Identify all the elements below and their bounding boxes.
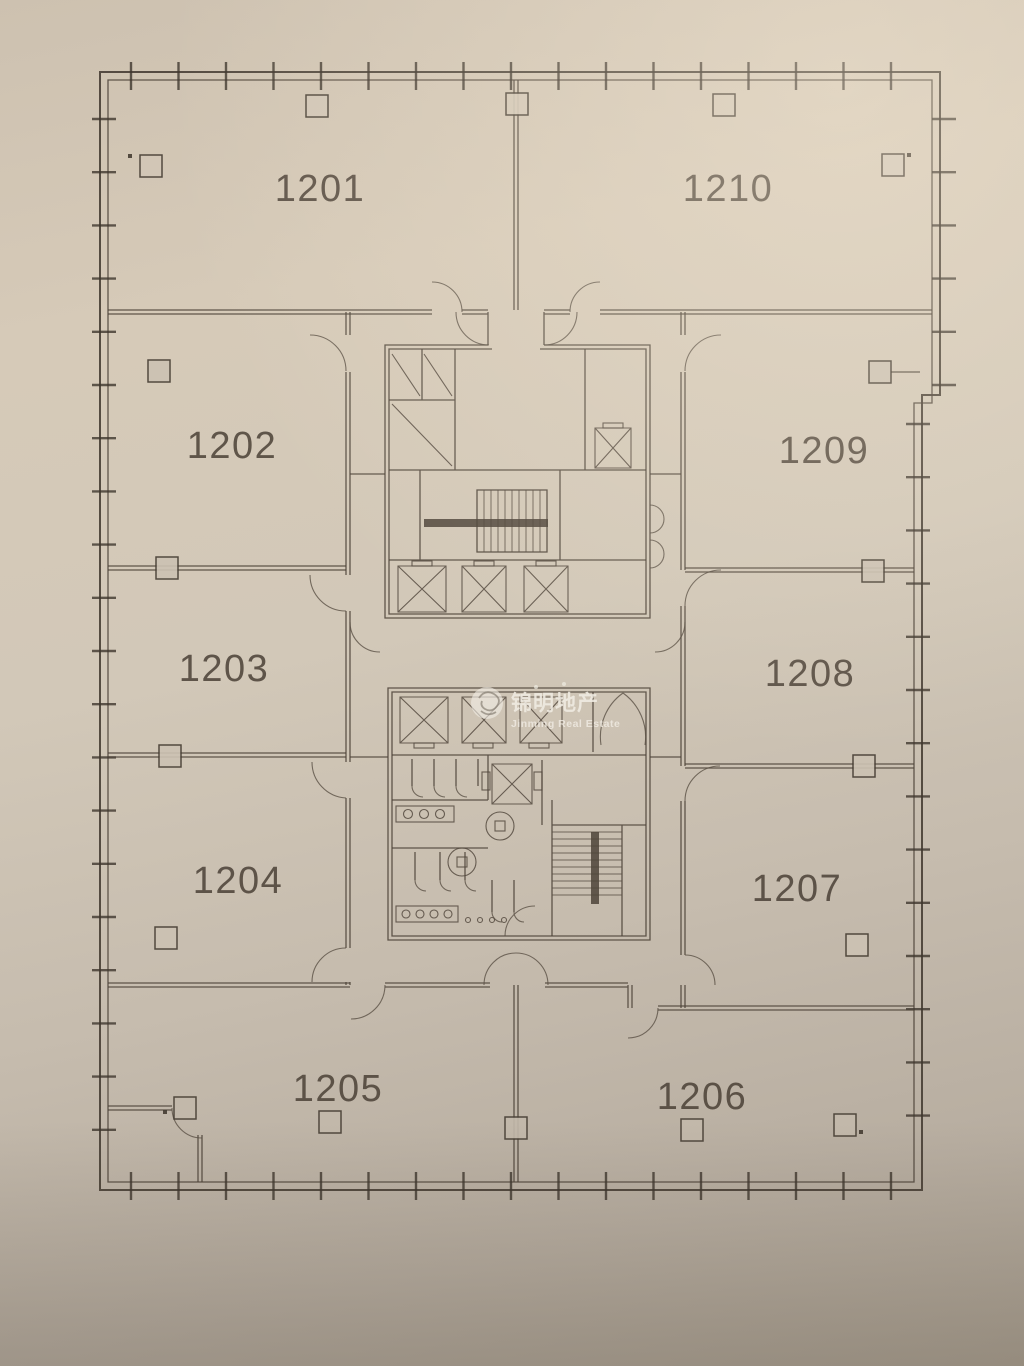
columns	[128, 93, 911, 1141]
watermark: 锦明地产 Jinming Real Estate	[471, 682, 620, 730]
room-label-1201: 1201	[275, 168, 366, 210]
room-label-1202: 1202	[187, 425, 278, 467]
room-label-1210: 1210	[683, 168, 774, 210]
room-label-1208: 1208	[765, 653, 856, 695]
watermark-company-name: 锦明地产	[511, 691, 599, 715]
sink-counters	[396, 806, 507, 923]
outer-walls	[100, 72, 940, 1190]
round-fixtures	[448, 812, 514, 876]
elevator-lower-center	[492, 764, 532, 804]
watermark-company-name-en: Jinming Real Estate	[511, 718, 620, 730]
elevator-bank-upper-2	[462, 566, 506, 612]
stair-upper-rail	[424, 519, 548, 527]
elevator-bank-upper-1	[398, 566, 446, 612]
room-label-1209: 1209	[779, 430, 870, 472]
bottom-corridor-walls	[108, 983, 914, 1010]
elevator-upper-right	[595, 428, 631, 468]
room-label-1203: 1203	[179, 648, 270, 690]
upper-core	[385, 345, 650, 618]
toilet-stall-walls	[412, 759, 514, 912]
elevator-sills-upper	[412, 423, 623, 566]
room-label-1206: 1206	[657, 1076, 748, 1118]
elevator-bank-upper-3	[524, 566, 568, 612]
stair-lower-rail	[591, 832, 599, 904]
floor-plan-photo: 1201 1202 1203 1204 1205 1206 1207 1208 …	[0, 0, 1024, 1366]
corridor-wall-left	[346, 312, 350, 985]
partition-walls	[108, 80, 932, 1182]
room-label-1207: 1207	[752, 868, 843, 910]
divider-1205-1206	[514, 985, 518, 1182]
room-label-1205: 1205	[293, 1068, 384, 1110]
elevator-bank-lower-1	[400, 697, 448, 743]
window-ticks	[92, 62, 956, 1200]
room-label-1204: 1204	[193, 860, 284, 902]
stair-lower-treads	[552, 832, 622, 895]
corridor-wall-right	[681, 312, 685, 1008]
top-rooms-bottom-wall	[108, 310, 932, 345]
floor-plan-drawing: 1201 1202 1203 1204 1205 1206 1207 1208 …	[0, 0, 1024, 1366]
